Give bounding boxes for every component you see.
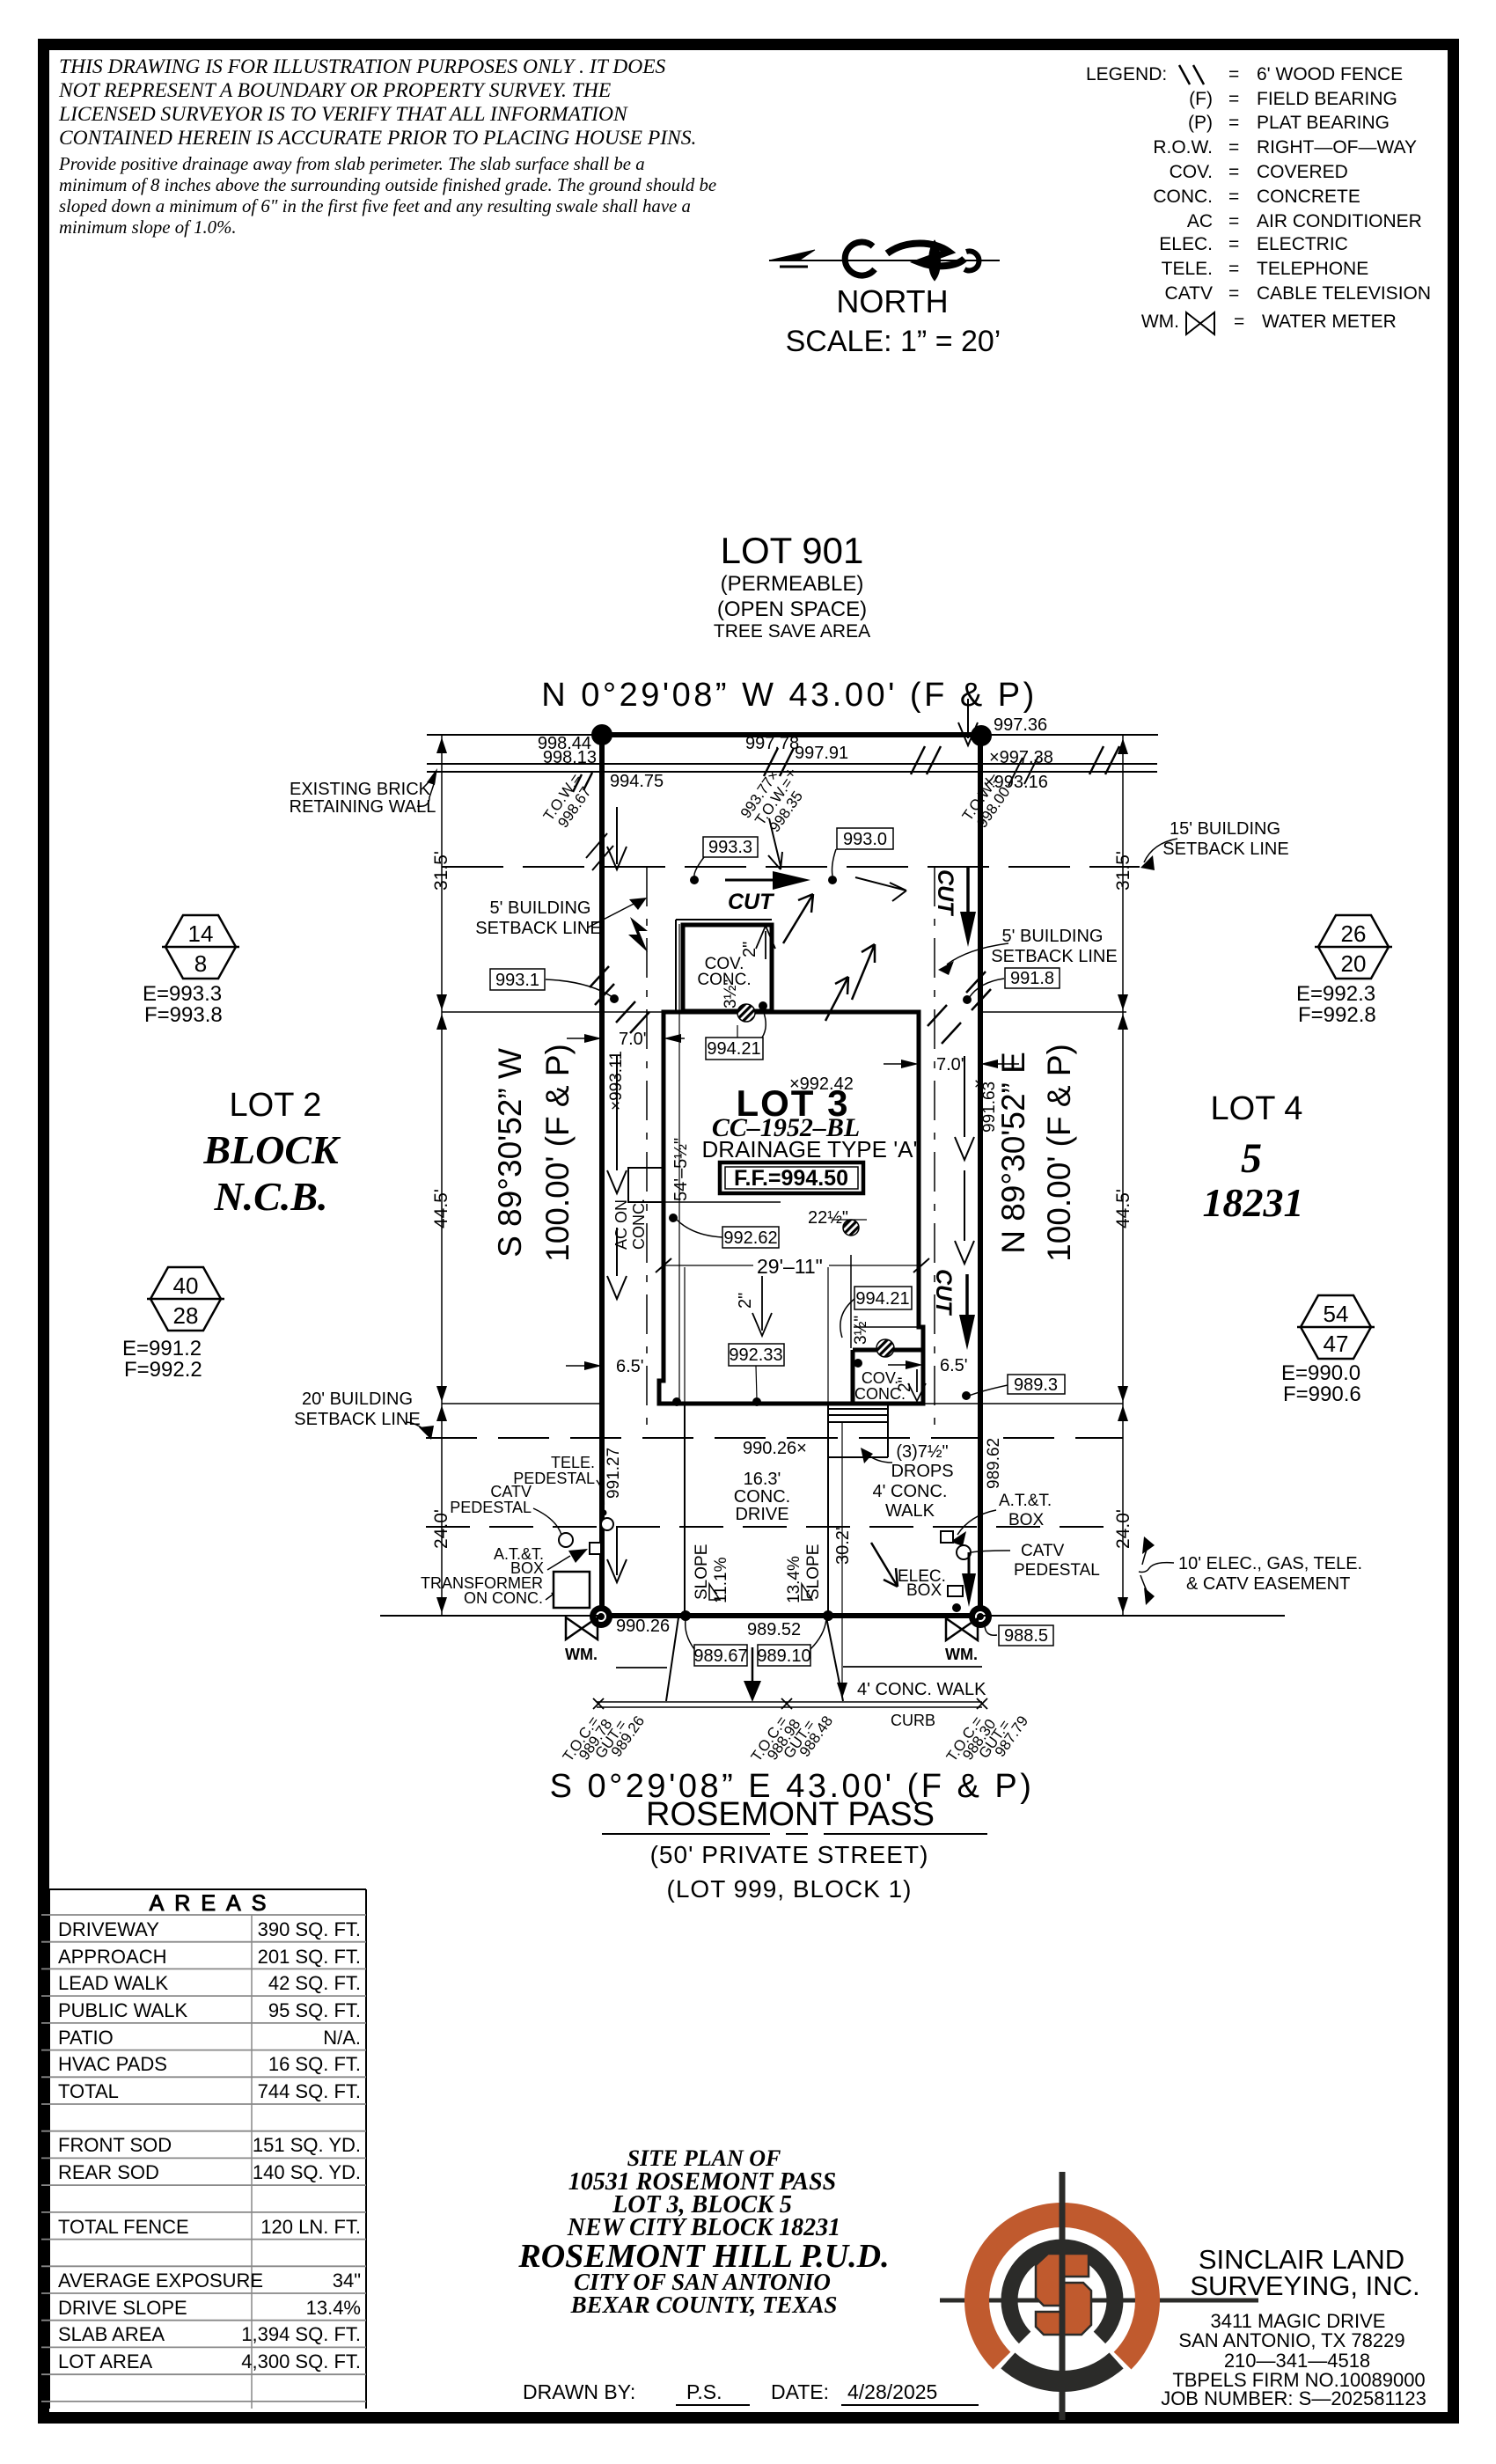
svg-text:CONC.: CONC. [734, 1487, 790, 1507]
svg-text:×: × [971, 1079, 989, 1089]
svg-text:997.78: 997.78 [745, 734, 799, 753]
svg-text:CUT: CUT [931, 1269, 956, 1316]
svg-text:LEGEND:: LEGEND: [1086, 64, 1167, 84]
svg-text:REAR SOD: REAR SOD [58, 2161, 159, 2183]
svg-text:=: = [1228, 64, 1239, 84]
svg-text:5' BUILDING: 5' BUILDING [1002, 927, 1104, 946]
svg-text:(P): (P) [1188, 113, 1213, 133]
svg-text:54: 54 [1324, 1301, 1349, 1327]
svg-text:16 SQ. FT.: 16 SQ. FT. [268, 2053, 361, 2075]
svg-text:3½": 3½" [852, 1316, 870, 1345]
svg-text:24.0': 24.0' [431, 1509, 451, 1549]
svg-text:CATV: CATV [1165, 283, 1213, 304]
svg-text:SETBACK LINE: SETBACK LINE [991, 947, 1117, 966]
svg-text:(F): (F) [1189, 89, 1213, 109]
svg-text:390 SQ. FT.: 390 SQ. FT. [258, 1918, 361, 1940]
svg-text:COV.: COV. [862, 1369, 898, 1387]
svg-text:LEAD WALK: LEAD WALK [58, 1972, 168, 1994]
svg-text:11.1%: 11.1% [712, 1557, 730, 1603]
svg-text:988.5: 988.5 [1004, 1626, 1048, 1646]
svg-text:WATER METER: WATER METER [1262, 312, 1397, 332]
svg-text:18231: 18231 [1203, 1180, 1304, 1225]
svg-text:20' BUILDING: 20' BUILDING [302, 1390, 413, 1409]
svg-text:NOT REPRESENT A BOUNDARY OR PR: NOT REPRESENT A BOUNDARY OR PROPERTY SUR… [58, 79, 611, 102]
svg-text:4' CONC. WALK: 4' CONC. WALK [857, 1680, 986, 1699]
svg-text:minimum of 8 inches above the: minimum of 8 inches above the surroundin… [59, 175, 716, 195]
svg-text:140 SQ. YD.: 140 SQ. YD. [253, 2161, 361, 2183]
svg-text:20: 20 [1341, 950, 1367, 977]
svg-text:(OPEN SPACE): (OPEN SPACE) [717, 598, 867, 621]
svg-text:40: 40 [173, 1272, 199, 1299]
svg-text:E=992.3: E=992.3 [1296, 982, 1375, 1006]
svg-text:WALK: WALK [885, 1501, 935, 1521]
svg-text:990.26×: 990.26× [743, 1439, 807, 1458]
svg-text:SURVEYING, INC.: SURVEYING, INC. [1190, 2270, 1419, 2301]
svg-text:993.0: 993.0 [843, 830, 887, 849]
svg-text:989.62: 989.62 [985, 1438, 1003, 1489]
svg-text:989.3: 989.3 [1014, 1375, 1058, 1395]
svg-text:997.36: 997.36 [994, 715, 1047, 735]
svg-text:=: = [1228, 211, 1239, 231]
svg-text:16.3': 16.3' [744, 1470, 781, 1489]
svg-text:31.5': 31.5' [431, 851, 451, 891]
svg-text:P.S.: P.S. [686, 2380, 722, 2403]
svg-text:SAN ANTONIO, TX 78229: SAN ANTONIO, TX 78229 [1178, 2329, 1404, 2351]
svg-text:5: 5 [1241, 1135, 1262, 1182]
svg-text:FRONT SOD: FRONT SOD [58, 2134, 172, 2156]
svg-text:=: = [1228, 259, 1239, 279]
svg-text:(LOT 999, BLOCK 1): (LOT 999, BLOCK 1) [667, 1875, 913, 1903]
svg-text:10' ELEC., GAS, TELE.: 10' ELEC., GAS, TELE. [1178, 1554, 1362, 1573]
svg-text:DRIVE: DRIVE [735, 1505, 788, 1524]
svg-text:14: 14 [188, 920, 214, 947]
svg-text:CONTAINED HEREIN IS ACCURATE P: CONTAINED HEREIN IS ACCURATE PRIOR TO PL… [59, 127, 696, 150]
svg-text:47: 47 [1324, 1331, 1349, 1357]
svg-text:LOT 4: LOT 4 [1211, 1090, 1303, 1127]
svg-text:(50' PRIVATE STREET): (50' PRIVATE STREET) [650, 1841, 929, 1868]
svg-text:RIGHT—OF—WAY: RIGHT—OF—WAY [1257, 137, 1417, 158]
svg-text:SETBACK LINE: SETBACK LINE [1162, 840, 1288, 859]
svg-text:992.62: 992.62 [723, 1228, 777, 1248]
svg-text:TREE SAVE AREA: TREE SAVE AREA [714, 621, 870, 642]
svg-text:100.00' (F & P): 100.00' (F & P) [1041, 1044, 1077, 1262]
svg-text:PATIO: PATIO [58, 2027, 114, 2049]
svg-text:JOB NUMBER: S—202581123: JOB NUMBER: S—202581123 [1161, 2387, 1426, 2409]
svg-text:TOTAL: TOTAL [58, 2080, 119, 2102]
svg-text:6.5': 6.5' [940, 1356, 968, 1375]
svg-text:=: = [1228, 187, 1239, 207]
svg-text:=: = [1228, 162, 1239, 182]
svg-text:S 89°30'52” W: S 89°30'52” W [492, 1048, 528, 1258]
svg-text:CATV: CATV [1021, 1542, 1065, 1560]
svg-text:N.C.B.: N.C.B. [213, 1174, 327, 1219]
svg-text:ROSEMONT PASS: ROSEMONT PASS [646, 1796, 935, 1833]
svg-text:BOX: BOX [1008, 1511, 1044, 1529]
svg-text:13.4%: 13.4% [306, 2297, 361, 2319]
svg-text:CURB: CURB [891, 1712, 935, 1729]
svg-text:A.T.&T.: A.T.&T. [999, 1492, 1052, 1510]
svg-text:CABLE TELEVISION: CABLE TELEVISION [1257, 283, 1431, 304]
svg-text:PLAT BEARING: PLAT BEARING [1257, 113, 1390, 133]
svg-text:PEDESTAL: PEDESTAL [450, 1499, 532, 1516]
svg-text:6' WOOD FENCE: 6' WOOD FENCE [1257, 64, 1403, 84]
svg-text:THIS DRAWING IS FOR ILLUSTRATI: THIS DRAWING IS FOR ILLUSTRATION PURPOSE… [59, 55, 666, 78]
svg-text:LOT 901: LOT 901 [721, 530, 864, 571]
svg-text:4' CONC.: 4' CONC. [873, 1482, 948, 1501]
svg-text:LOT 2: LOT 2 [230, 1087, 322, 1124]
svg-text:FIELD BEARING: FIELD BEARING [1257, 89, 1397, 109]
svg-text:N/A.: N/A. [323, 2027, 361, 2049]
svg-text:LOT AREA: LOT AREA [58, 2350, 153, 2372]
svg-text:(PERMEABLE): (PERMEABLE) [721, 572, 864, 596]
svg-text:CUT: CUT [728, 890, 775, 914]
svg-text:=: = [1228, 234, 1239, 254]
svg-text:5' BUILDING: 5' BUILDING [490, 898, 591, 918]
svg-text:992.33: 992.33 [729, 1346, 782, 1365]
svg-text:1,394 SQ. FT.: 1,394 SQ. FT. [241, 2323, 361, 2345]
svg-text:ON CONC.: ON CONC. [464, 1589, 543, 1607]
svg-text:DROPS: DROPS [891, 1462, 953, 1481]
svg-text:30.2': 30.2' [833, 1527, 853, 1565]
svg-text:ELECTRIC: ELECTRIC [1257, 234, 1348, 254]
svg-text:SCALE: 1” = 20’: SCALE: 1” = 20’ [786, 325, 1001, 358]
svg-text:DRAWN BY:: DRAWN BY: [523, 2380, 635, 2403]
svg-text:EXISTING BRICK: EXISTING BRICK [290, 780, 431, 799]
svg-text:3½": 3½" [722, 979, 740, 1008]
svg-text:6.5': 6.5' [616, 1357, 644, 1376]
svg-text:2": 2" [736, 1293, 755, 1309]
svg-text:29'–11": 29'–11" [757, 1255, 823, 1278]
svg-text:& CATV EASEMENT: & CATV EASEMENT [1186, 1574, 1350, 1594]
svg-text:×997.38: ×997.38 [989, 748, 1053, 767]
svg-text:E=993.3: E=993.3 [143, 982, 222, 1006]
svg-text:F=992.2: F=992.2 [124, 1358, 202, 1382]
svg-text:28: 28 [173, 1302, 199, 1329]
svg-text:24.0': 24.0' [1113, 1509, 1133, 1549]
svg-text:AVERAGE EXPOSURE: AVERAGE EXPOSURE [58, 2270, 263, 2292]
svg-text:AC: AC [1187, 211, 1213, 231]
svg-text:COV.: COV. [1170, 162, 1213, 182]
svg-text:8: 8 [194, 950, 207, 977]
svg-text:120 LN. FT.: 120 LN. FT. [260, 2216, 361, 2238]
svg-text:997.91: 997.91 [795, 744, 848, 763]
svg-text:NORTH: NORTH [836, 283, 948, 319]
svg-text:95 SQ. FT.: 95 SQ. FT. [268, 1999, 361, 2021]
svg-text:TOTAL FENCE: TOTAL FENCE [58, 2216, 189, 2238]
svg-text:201 SQ. FT.: 201 SQ. FT. [258, 1946, 361, 1968]
svg-text:E=990.0: E=990.0 [1281, 1361, 1360, 1385]
svg-text:BLOCK: BLOCK [202, 1127, 341, 1172]
svg-text:994.21: 994.21 [855, 1289, 909, 1309]
svg-text:DRIVE SLOPE: DRIVE SLOPE [58, 2297, 187, 2319]
svg-text:R.O.W.: R.O.W. [1153, 137, 1213, 158]
svg-text:CONC.: CONC. [1153, 187, 1213, 207]
svg-text:989.52: 989.52 [747, 1620, 801, 1639]
svg-text:=: = [1234, 312, 1244, 332]
svg-text:ELEC.: ELEC. [1159, 234, 1213, 254]
svg-text:AREAS: AREAS [150, 1891, 277, 1916]
svg-text:minimum slope of 1.0%.: minimum slope of 1.0%. [59, 217, 237, 238]
svg-text:100.00' (F & P): 100.00' (F & P) [539, 1044, 576, 1262]
svg-text:CUT: CUT [933, 869, 957, 917]
svg-text:998.13: 998.13 [543, 748, 597, 767]
svg-text:44.5': 44.5' [1113, 1189, 1133, 1228]
svg-text:BOX: BOX [906, 1581, 942, 1600]
svg-text:42 SQ. FT.: 42 SQ. FT. [268, 1972, 361, 1994]
svg-text:989.10: 989.10 [757, 1646, 810, 1666]
svg-text:4,300 SQ. FT.: 4,300 SQ. FT. [241, 2350, 361, 2372]
svg-text:RETAINING WALL: RETAINING WALL [290, 797, 436, 817]
svg-text:E=991.2: E=991.2 [122, 1337, 202, 1360]
svg-text:AIR CONDITIONER: AIR CONDITIONER [1257, 211, 1422, 231]
svg-text:991.27: 991.27 [605, 1448, 623, 1499]
svg-text:Provide positive drainage away: Provide positive drainage away from slab… [58, 154, 645, 174]
svg-text:LICENSED SURVEYOR IS TO VERIFY: LICENSED SURVEYOR IS TO VERIFY THAT ALL … [58, 103, 628, 126]
svg-text:PUBLIC WALK: PUBLIC WALK [58, 1999, 187, 2021]
svg-text:F=992.8: F=992.8 [1298, 1003, 1376, 1027]
svg-text:994.21: 994.21 [707, 1039, 760, 1059]
svg-text:=: = [1228, 137, 1239, 158]
svg-text:×993.11: ×993.11 [607, 1051, 626, 1111]
svg-text:SETBACK LINE: SETBACK LINE [294, 1410, 420, 1429]
svg-text:34": 34" [333, 2270, 361, 2292]
svg-text:WM.: WM. [945, 1646, 978, 1663]
svg-text:CONCRETE: CONCRETE [1257, 187, 1360, 207]
svg-text:991.8: 991.8 [1010, 969, 1054, 988]
svg-text:7.0': 7.0' [936, 1055, 964, 1074]
svg-text:744 SQ. FT.: 744 SQ. FT. [258, 2080, 361, 2102]
svg-text:TELEPHONE: TELEPHONE [1257, 259, 1368, 279]
svg-text:44.5': 44.5' [431, 1189, 451, 1228]
svg-text:PEDESTAL: PEDESTAL [1014, 1561, 1100, 1580]
svg-text:N 89°30'52” E: N 89°30'52” E [995, 1052, 1031, 1254]
svg-text:15' BUILDING: 15' BUILDING [1170, 819, 1280, 839]
svg-text:=: = [1228, 283, 1239, 304]
svg-text:993.1: 993.1 [495, 971, 539, 990]
svg-text:=: = [1228, 89, 1239, 109]
svg-text:DATE:: DATE: [771, 2380, 829, 2403]
svg-text:26: 26 [1341, 920, 1367, 947]
svg-text:54'–5½": 54'–5½" [671, 1138, 691, 1201]
svg-text:SLOPE: SLOPE [693, 1544, 711, 1600]
svg-text:WM.: WM. [565, 1646, 598, 1663]
svg-text:989.67: 989.67 [693, 1646, 747, 1666]
svg-text:HVAC PADS: HVAC PADS [58, 2053, 167, 2075]
svg-text:COVERED: COVERED [1257, 162, 1348, 182]
svg-text:SLAB AREA: SLAB AREA [58, 2323, 165, 2345]
svg-text:CONC.: CONC. [630, 1199, 648, 1250]
svg-text:31.5': 31.5' [1113, 851, 1133, 891]
svg-text:F=990.6: F=990.6 [1283, 1382, 1361, 1406]
svg-text:TELE.: TELE. [551, 1454, 595, 1471]
svg-text:(3)7½": (3)7½" [896, 1442, 948, 1462]
svg-text:CATV: CATV [490, 1483, 532, 1500]
svg-text:sloped down a minimum of 6" in: sloped down a minimum of 6" in the first… [59, 196, 691, 216]
svg-text:SETBACK LINE: SETBACK LINE [475, 919, 601, 938]
svg-text:22½": 22½" [808, 1208, 848, 1228]
svg-text:DRIVEWAY: DRIVEWAY [58, 1918, 159, 1940]
svg-text:APPROACH: APPROACH [58, 1946, 166, 1968]
svg-text:TELE.: TELE. [1162, 259, 1213, 279]
svg-text:WM.: WM. [1141, 312, 1179, 332]
svg-text:AC ON: AC ON [612, 1199, 630, 1250]
svg-text:N 0°29'08” W 43.00' (F & P): N 0°29'08” W 43.00' (F & P) [541, 677, 1038, 714]
svg-text:151 SQ. YD.: 151 SQ. YD. [253, 2134, 361, 2156]
svg-text:990.26: 990.26 [616, 1617, 670, 1636]
svg-text:F.F.=994.50: F.F.=994.50 [734, 1166, 848, 1191]
svg-text:×992.42: ×992.42 [789, 1074, 854, 1094]
svg-text:993.3: 993.3 [708, 838, 752, 857]
svg-text:DRAINAGE TYPE 'A': DRAINAGE TYPE 'A' [702, 1136, 918, 1162]
svg-text:F=993.8: F=993.8 [144, 1003, 223, 1027]
svg-text:=: = [1228, 113, 1239, 133]
svg-text:SITE PLAN OF: SITE PLAN OF [627, 2145, 781, 2171]
svg-text:4/28/2025: 4/28/2025 [847, 2380, 937, 2403]
svg-text:13.4%: 13.4% [785, 1556, 803, 1603]
svg-text:994.75: 994.75 [610, 772, 664, 791]
svg-text:BEXAR COUNTY, TEXAS: BEXAR COUNTY, TEXAS [570, 2292, 838, 2318]
svg-text:7.0': 7.0' [619, 1030, 647, 1049]
